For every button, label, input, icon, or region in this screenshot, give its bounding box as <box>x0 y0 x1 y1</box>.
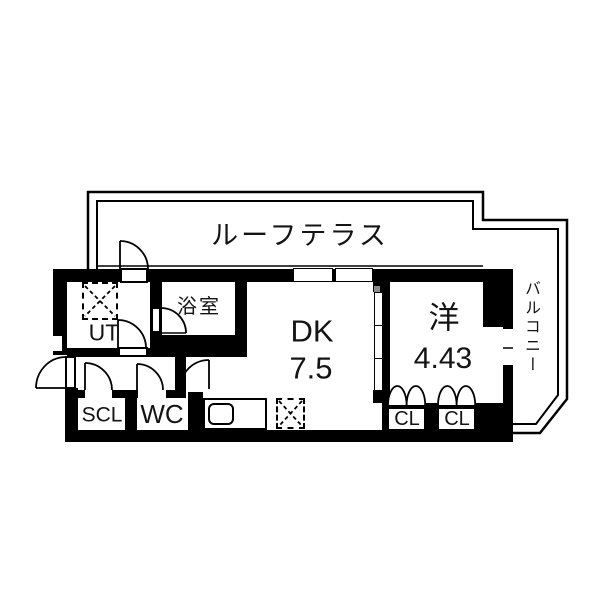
roof-terrace-label: ルーフテラス <box>211 223 389 250</box>
room-bath-label: 浴室 <box>177 297 221 317</box>
wall-dk-western-right <box>382 292 390 403</box>
sliding-door-panel-2 <box>374 325 383 359</box>
washer-pan-icon <box>82 282 118 320</box>
closet1-label: CL <box>394 409 420 429</box>
sliding-door-panel-1 <box>374 292 383 326</box>
bath-door-leaf <box>151 307 161 333</box>
entrance-door-leaf <box>65 356 76 389</box>
wc-door-threshold <box>138 390 166 398</box>
closet2-label: CL <box>444 409 470 429</box>
terrace-door-arc-icon <box>120 241 148 269</box>
room-dk-label: DK <box>290 316 333 347</box>
wall-corridor-stub <box>175 357 186 398</box>
room-scl-label: SCL <box>82 405 123 426</box>
scl-door-threshold <box>85 390 112 398</box>
left-wall-window <box>53 336 62 351</box>
terrace-door-leaf <box>120 268 148 283</box>
room-ut-label: UT <box>89 322 120 345</box>
wall-right-lower <box>503 367 513 430</box>
wall-bath-bottom <box>150 335 247 357</box>
wall-scl-wc-divider <box>125 398 137 430</box>
floor-plan: ルーフテラス バルコニー UT 浴室 DK 7.5 洋 4.43 SCL WC … <box>0 0 600 600</box>
ut-door-leaf <box>118 347 148 357</box>
scl-door-arc-icon <box>85 363 112 390</box>
room-western-size: 4.43 <box>414 344 472 374</box>
western-window <box>503 327 513 367</box>
room-wc-label: WC <box>140 401 183 427</box>
wall-left-lower <box>65 388 78 430</box>
room-dk-size: 7.5 <box>289 353 332 384</box>
ut-door-arc-icon <box>118 320 146 348</box>
dk-window-2 <box>335 268 373 282</box>
entrance-door-arc-icon <box>36 357 65 388</box>
sliding-door-panel-3 <box>374 358 383 391</box>
wall-dk-western-bottom-stub <box>373 390 390 403</box>
room-western-label: 洋 <box>429 303 460 334</box>
kitchen-sink-icon <box>208 403 234 425</box>
fridge-space-icon <box>276 398 305 429</box>
dk-window-1 <box>293 268 333 282</box>
wc-door-arc-icon <box>137 364 163 390</box>
wall-topright-block <box>483 269 513 327</box>
balcony-label: バルコニー <box>522 280 538 375</box>
wall-kitchen <box>188 392 203 430</box>
wall-bottom <box>65 430 513 442</box>
